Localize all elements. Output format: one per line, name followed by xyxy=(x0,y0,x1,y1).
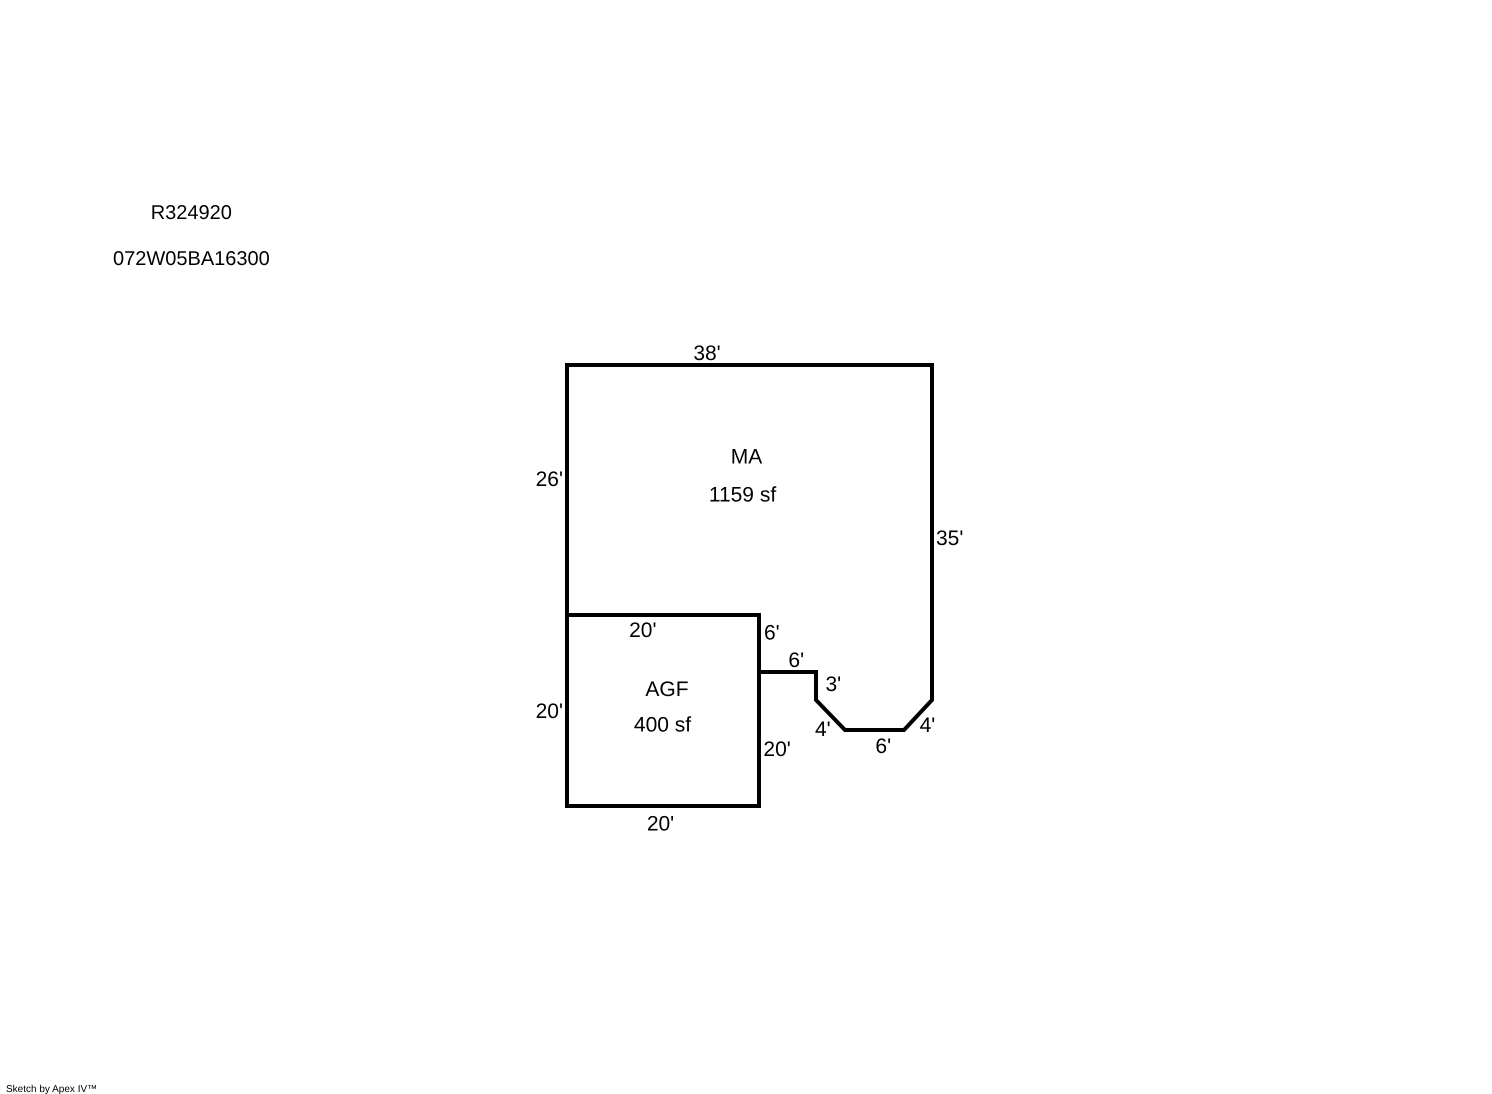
svg-text:AGF: AGF xyxy=(645,678,688,701)
svg-text:26': 26' xyxy=(536,468,563,491)
svg-text:1159 sf: 1159 sf xyxy=(709,484,776,507)
svg-text:20': 20' xyxy=(536,700,563,723)
svg-text:072W05BA16300: 072W05BA16300 xyxy=(113,248,270,270)
svg-text:20': 20' xyxy=(763,738,790,761)
svg-text:3': 3' xyxy=(826,673,842,696)
svg-text:400 sf: 400 sf xyxy=(634,714,691,737)
svg-text:20': 20' xyxy=(629,619,656,642)
svg-text:38': 38' xyxy=(693,342,720,365)
svg-text:4': 4' xyxy=(920,714,936,737)
svg-text:Sketch by Apex IV™: Sketch by Apex IV™ xyxy=(6,1084,97,1094)
svg-text:6': 6' xyxy=(788,649,804,672)
svg-text:35': 35' xyxy=(936,527,963,550)
svg-text:4': 4' xyxy=(815,718,831,741)
svg-text:6': 6' xyxy=(875,735,891,758)
svg-text:20': 20' xyxy=(647,813,674,836)
svg-text:6': 6' xyxy=(764,622,780,645)
svg-text:MA: MA xyxy=(731,446,763,469)
svg-text:R324920: R324920 xyxy=(151,202,232,224)
